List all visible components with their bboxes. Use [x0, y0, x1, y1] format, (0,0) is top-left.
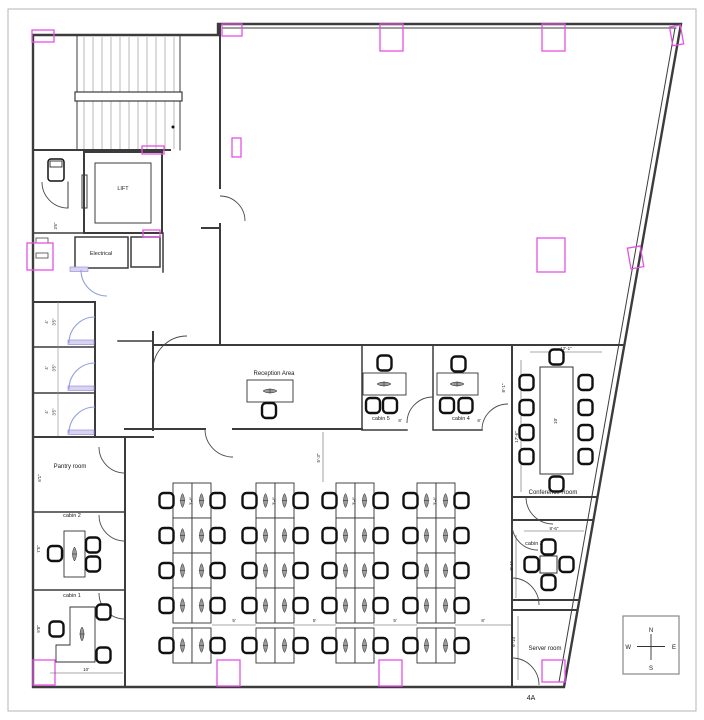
pantry-label: Pantry room	[54, 464, 87, 470]
electrical-label: Electrical	[90, 251, 112, 257]
floor-plan-sheet: LIFT 3'6" Electrical 4' 3'5" 4' 3'5" 4' …	[0, 0, 704, 720]
compass-west: W	[625, 645, 631, 651]
open-office: 3'-4" 3'-4" 3'-4" 3'-4" 5' 5' 5' 8' 5'-3…	[160, 432, 513, 663]
front-aisle-dim: 5'-3"	[316, 453, 321, 462]
cabin4-label: cabin 4	[452, 416, 470, 422]
server-label: Server room	[528, 646, 561, 652]
cabin1-label: cabin 1	[63, 593, 81, 599]
room-cabin5: cabin 5 8'	[363, 356, 406, 424]
compass-north: N	[649, 628, 653, 634]
reception-label: Reception Area	[253, 371, 295, 377]
cabin3-dim-side: 8'-1"	[509, 561, 514, 570]
bank4-desk-dim: 3'-4"	[433, 496, 438, 505]
cabin5-dim: 8'	[398, 418, 402, 423]
cabin3-label: cabin 3	[525, 541, 543, 547]
conference-table-dim: 10'	[553, 418, 558, 424]
cabin1-dim-side: 9'8"	[36, 625, 41, 633]
cabin3-dim-top: 8'-6"	[550, 526, 559, 531]
pantry-dim-side: 6'1"	[37, 474, 42, 482]
cabin3-table	[540, 556, 557, 573]
cabin4-dim-side: 8'-1"	[501, 383, 506, 392]
floor-plan-drawing: LIFT 3'6" Electrical 4' 3'5" 4' 3'5" 4' …	[0, 0, 704, 720]
room-cabin1: cabin 1 9'8" 10'	[36, 593, 123, 673]
stall2-depth: 3'5"	[52, 364, 57, 371]
stall3-width: 4'	[44, 410, 49, 413]
cabin1-dim-front: 10'	[83, 667, 89, 672]
room-lift: LIFT	[82, 152, 162, 233]
toilet-stalls: 4' 3'5" 4' 3'5" 4' 3'5"	[44, 317, 95, 435]
compass-south: S	[649, 666, 653, 672]
stall1-depth: 3'5"	[52, 318, 57, 325]
conference-dim-top: 12'-1"	[560, 346, 572, 351]
cabin2-label: cabin 2	[63, 513, 81, 519]
cabin4-dim: 8'	[477, 418, 481, 423]
stall2-width: 4'	[44, 366, 49, 369]
conference-dim-side: 17'-6"	[514, 431, 519, 443]
room-cabin4: cabin 4 8' 8'-1"	[437, 357, 506, 424]
compass-east: E	[672, 645, 676, 651]
staircase	[75, 36, 182, 150]
lift-label: LIFT	[117, 186, 129, 192]
compass-rose: N S E W	[623, 616, 679, 674]
aisle-dim-4: 8'	[481, 618, 485, 623]
room-electrical: Electrical	[70, 237, 160, 296]
wc-dim: 3'6"	[53, 222, 58, 229]
room-pantry: Pantry room 6'1"	[37, 464, 86, 482]
bank3-desk-dim: 3'-4"	[352, 496, 357, 505]
server-dim-side: 6'-10"	[511, 635, 516, 647]
sheet-label: 4A	[527, 695, 536, 702]
bank2-desk-dim: 3'-4"	[272, 496, 277, 505]
cabin2-dim-side: 7'5"	[36, 545, 41, 553]
aisle-dim-1: 5'	[232, 618, 236, 623]
bank1-desk-dim: 3'-4"	[189, 496, 194, 505]
conference-label: Conference Room	[529, 490, 578, 496]
stall1-width: 4'	[44, 320, 49, 323]
room-cabin2: cabin 2 7'5"	[36, 513, 100, 577]
room-reception: Reception Area	[247, 371, 295, 418]
room-cabin3: 8'-6" cabin 3 8'-1"	[509, 526, 584, 598]
room-server: 6'-10" Server room	[511, 616, 562, 680]
aisle-dim-2: 5'	[313, 618, 317, 623]
stall3-depth: 3'5"	[52, 408, 57, 415]
room-conference: 12'-1" 17'-6" 10' Conference Room	[514, 346, 602, 496]
cabin5-label: cabin 5	[372, 416, 390, 422]
interior-walls	[33, 24, 624, 687]
aisle-dim-3: 5'	[393, 618, 397, 623]
